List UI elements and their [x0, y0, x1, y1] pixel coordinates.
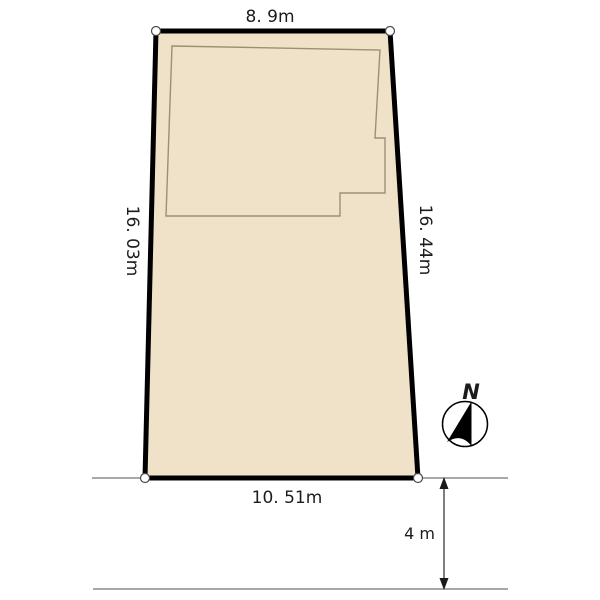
corner-marker-top-right: [386, 27, 395, 36]
land-plot-diagram: 8. 9m 16. 03m 16. 44m 10. 51m 4 m N: [0, 0, 600, 600]
dimension-label-left: 16. 03m: [122, 206, 142, 277]
road-width-label: 4 m: [404, 524, 435, 543]
plot-survey-svg: 8. 9m 16. 03m 16. 44m 10. 51m 4 m N: [0, 0, 600, 600]
dimension-label-bottom: 10. 51m: [252, 488, 323, 508]
arrow-down-icon: [440, 578, 449, 590]
corner-marker-bottom-left: [141, 474, 150, 483]
road-width-arrow: 4 m: [404, 477, 448, 590]
dimension-label-top: 8. 9m: [246, 7, 295, 27]
arrow-up-icon: [440, 477, 449, 489]
corner-marker-top-left: [152, 27, 161, 36]
compass: N: [443, 380, 488, 447]
north-label: N: [462, 380, 480, 404]
dimension-label-right: 16. 44m: [415, 205, 435, 276]
corner-marker-bottom-right: [414, 474, 423, 483]
